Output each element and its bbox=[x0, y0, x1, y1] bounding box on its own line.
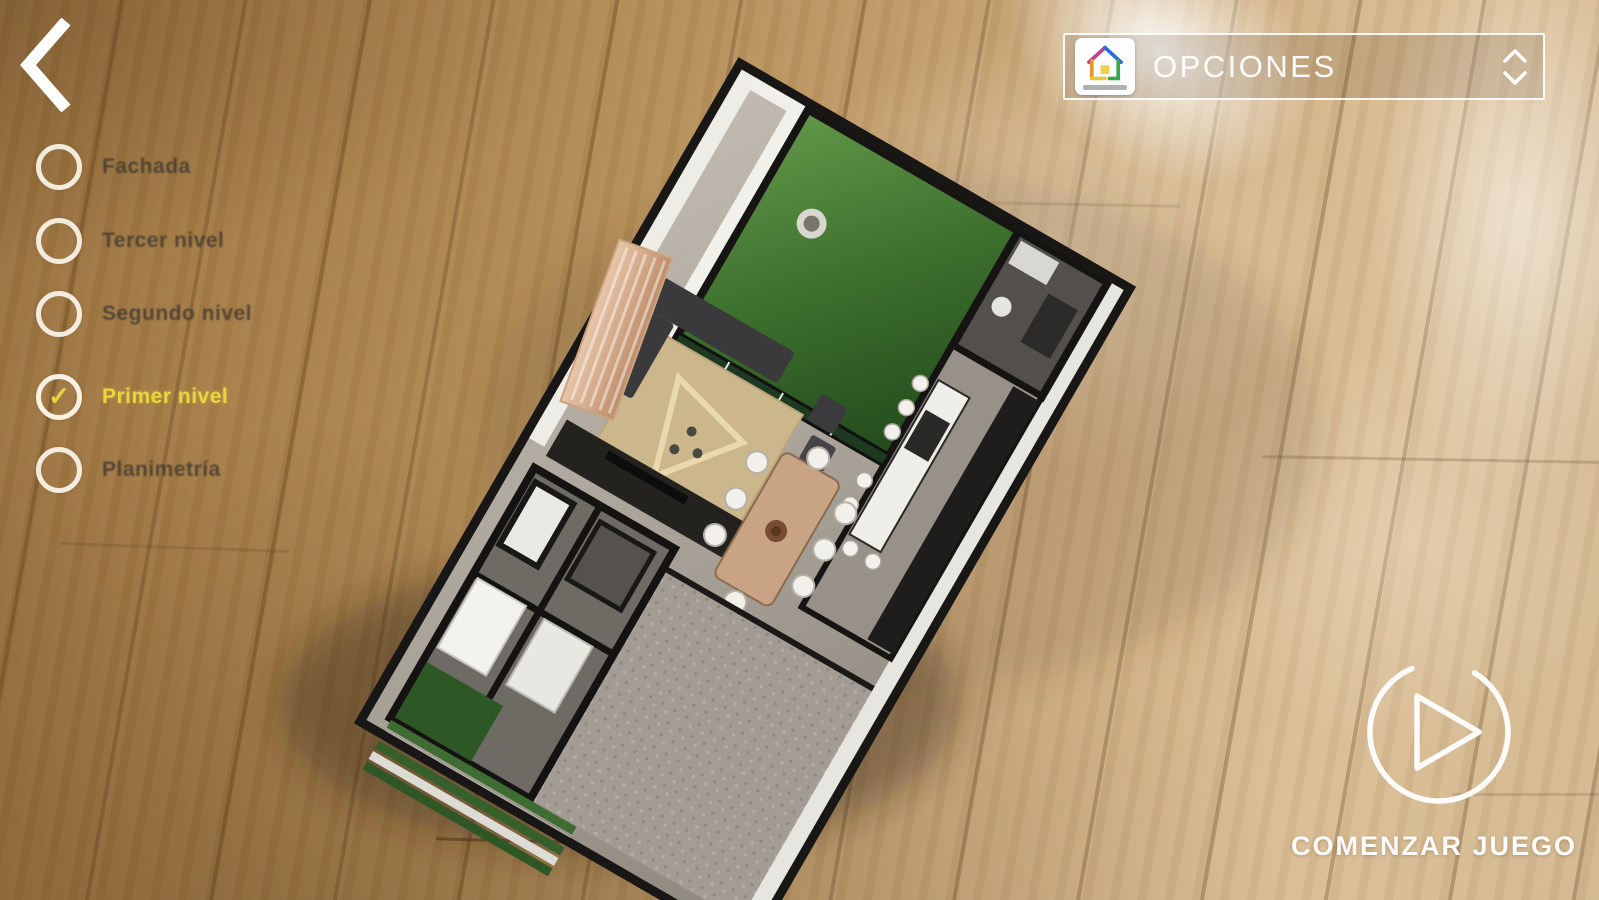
level-option-segundo-nivel[interactable]: Segundo nivel bbox=[36, 291, 252, 337]
level-option-label: Fachada bbox=[102, 155, 191, 179]
level-option-label: Tercer nivel bbox=[102, 229, 224, 253]
start-game-label[interactable]: COMENZAR JUEGO bbox=[1266, 831, 1599, 862]
level-option-label: Planimetría bbox=[102, 458, 221, 482]
level-option-planimetria[interactable]: Planimetría bbox=[36, 447, 221, 493]
level-option-label: Segundo nivel bbox=[102, 302, 252, 326]
level-option-label: Primer nivel bbox=[102, 385, 228, 409]
level-option-primer-nivel[interactable]: ✓ Primer nivel bbox=[36, 374, 228, 420]
options-dropdown[interactable]: OPCIONES bbox=[1063, 33, 1545, 100]
play-circle-icon bbox=[1370, 669, 1508, 802]
radio-circle[interactable]: ✓ bbox=[36, 374, 82, 420]
radio-circle[interactable] bbox=[36, 218, 82, 264]
radio-circle[interactable] bbox=[36, 144, 82, 190]
back-button[interactable] bbox=[14, 18, 72, 112]
play-triangle-icon bbox=[1417, 696, 1479, 768]
radio-circle[interactable] bbox=[36, 291, 82, 337]
up-down-chevrons-icon[interactable] bbox=[1499, 44, 1531, 90]
ar-app-screen: Fachada Tercer nivel Segundo nivel ✓ Pri… bbox=[0, 0, 1599, 900]
radio-circle[interactable] bbox=[36, 447, 82, 493]
level-option-fachada[interactable]: Fachada bbox=[36, 144, 191, 190]
options-dropdown-label: OPCIONES bbox=[1153, 49, 1337, 85]
house-logo-icon bbox=[1083, 43, 1127, 83]
start-game-play-button[interactable] bbox=[1357, 652, 1522, 817]
chevron-left-icon bbox=[28, 26, 62, 104]
check-mark-icon: ✓ bbox=[48, 383, 70, 409]
rainbow-house-logo bbox=[1075, 38, 1135, 95]
logo-caption-smudge bbox=[1083, 85, 1127, 90]
level-option-tercer-nivel[interactable]: Tercer nivel bbox=[36, 218, 224, 264]
